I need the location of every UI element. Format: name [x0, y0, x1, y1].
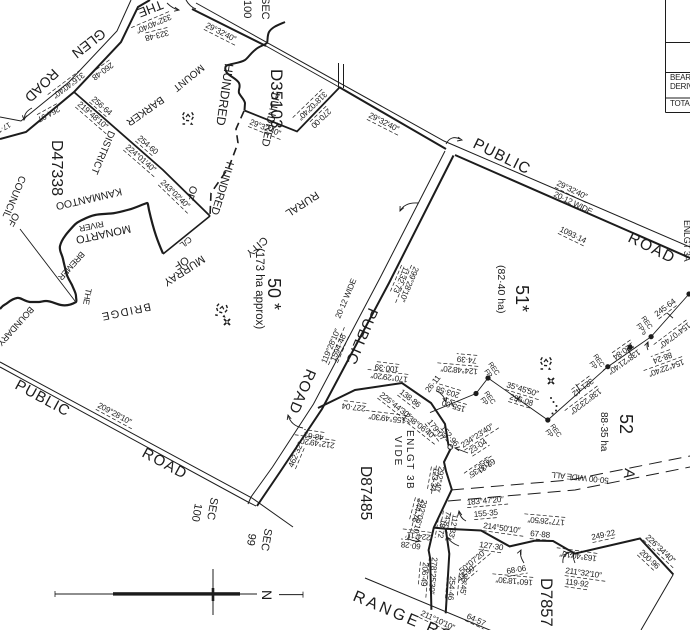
svg-text:D47338: D47338	[48, 140, 65, 196]
svg-text:SEC: SEC	[259, 0, 271, 20]
svg-text:DERIVED: DERIVED	[670, 82, 690, 91]
svg-text:(173 ha approx): (173 ha approx)	[253, 248, 265, 329]
svg-text:99: 99	[244, 532, 258, 546]
svg-text:74·39: 74·39	[456, 354, 477, 365]
svg-text:D87485: D87485	[357, 466, 374, 520]
svg-text:50 *: 50 *	[264, 278, 284, 310]
svg-text:VIDE: VIDE	[392, 436, 403, 467]
svg-text:A: A	[620, 468, 638, 480]
svg-text:ENLGT 3B: ENLGT 3B	[404, 430, 415, 490]
svg-text:BEARINGS: BEARINGS	[670, 73, 690, 82]
svg-text:ENLGT 3A: ENLGT 3A	[682, 220, 690, 262]
svg-text:52: 52	[616, 414, 636, 434]
svg-text:100: 100	[241, 0, 253, 18]
svg-text:TOTAL: TOTAL	[670, 99, 690, 108]
svg-text:(82·40 ha): (82·40 ha)	[495, 265, 507, 313]
svg-text:88·35 ha: 88·35 ha	[598, 412, 609, 452]
svg-text:D7857: D7857	[537, 578, 555, 627]
svg-text:51*: 51*	[512, 285, 532, 312]
svg-text:N: N	[259, 590, 275, 600]
svg-text:67·88: 67·88	[530, 529, 551, 540]
